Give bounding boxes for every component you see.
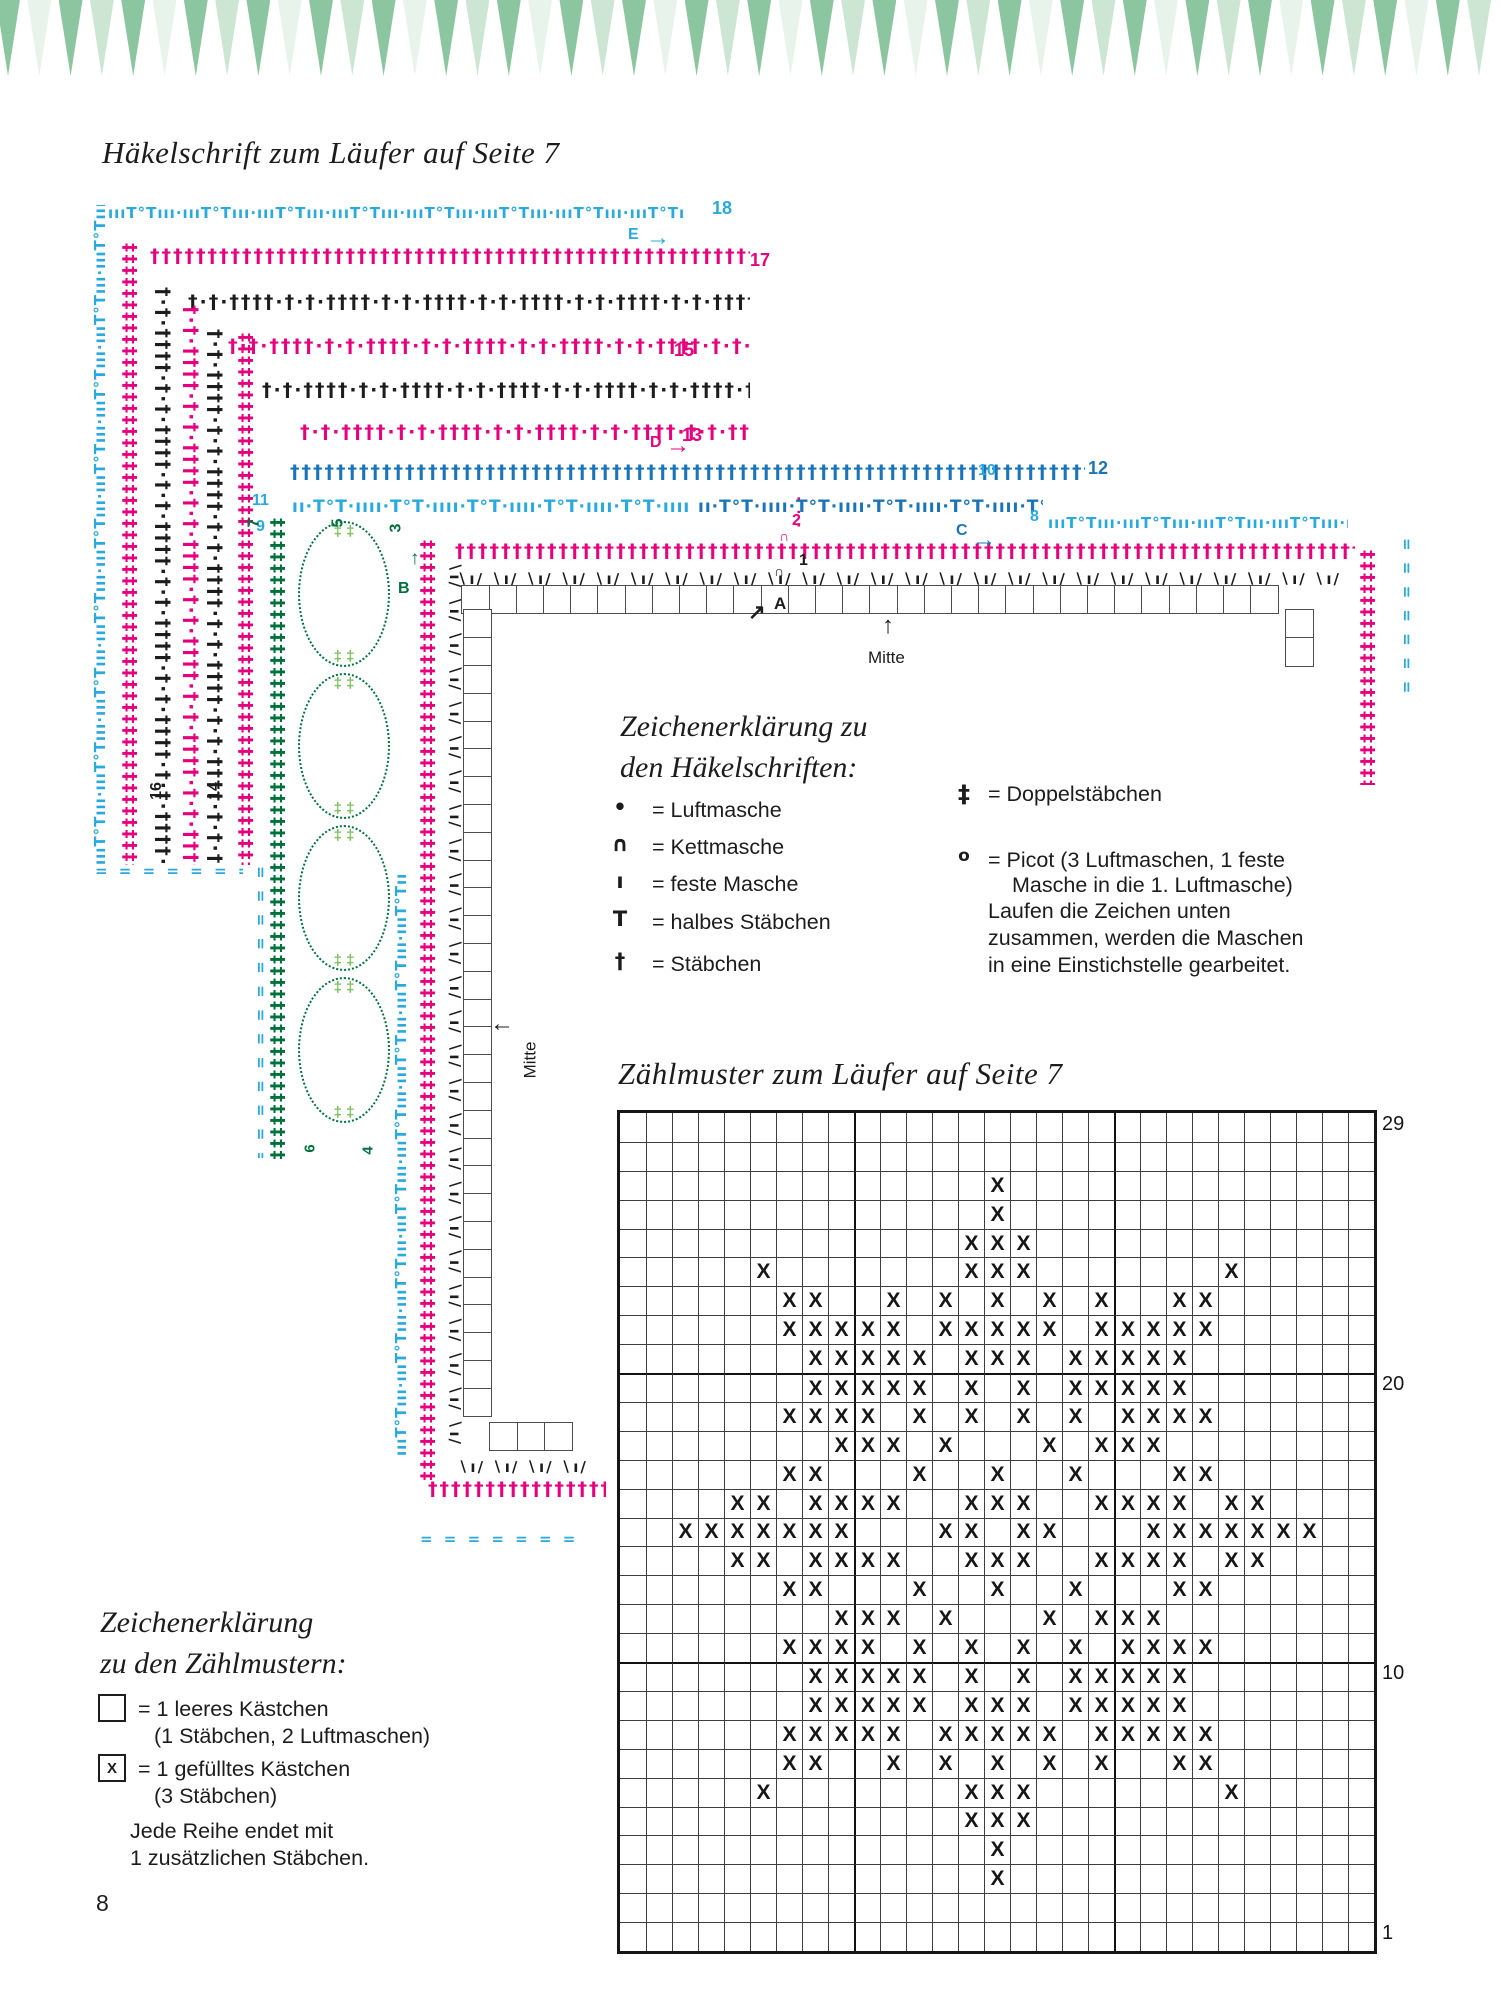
- filled-grid-cell: X: [1166, 1720, 1192, 1749]
- grid-cell: [724, 1720, 750, 1749]
- banner-diamond: [121, 0, 145, 76]
- grid-cell: [724, 1922, 750, 1951]
- grid-cell: [1192, 1431, 1218, 1460]
- filled-grid-cell: X: [1010, 1402, 1036, 1431]
- filled-grid-cell: X: [750, 1546, 776, 1575]
- filet-box: [463, 915, 492, 944]
- grid-cell: [672, 1778, 698, 1807]
- filled-grid-cell: X: [1088, 1546, 1114, 1575]
- grid-cell: [1140, 1257, 1166, 1286]
- grid-cell: [698, 1344, 724, 1373]
- grid-cell: [1218, 1431, 1244, 1460]
- grid-cell: [1348, 1864, 1374, 1893]
- filet-box: [625, 585, 654, 614]
- mitte-label-left: Mitte: [520, 1042, 540, 1079]
- grid-cell: [698, 1778, 724, 1807]
- grid-cell: [1218, 1633, 1244, 1662]
- grid-cell: [828, 1257, 854, 1286]
- filled-grid-cell: X: [984, 1229, 1010, 1258]
- mitte-label-top: Mitte: [868, 648, 905, 668]
- filled-grid-cell: X: [958, 1662, 984, 1691]
- grid-cell: [776, 1604, 802, 1633]
- grid-cell: [1140, 1200, 1166, 1229]
- grid-cell: [646, 1749, 672, 1778]
- grid-cell: [984, 1893, 1010, 1922]
- filled-grid-cell: X: [880, 1720, 906, 1749]
- grid-cell: [1296, 1835, 1322, 1864]
- banner-diamond: [90, 0, 114, 76]
- grid-cell: [1348, 1460, 1374, 1489]
- grid-cell: [984, 1373, 1010, 1402]
- grid-cell: [1322, 1402, 1348, 1431]
- filled-grid-cell: X: [1270, 1518, 1296, 1547]
- filled-grid-cell: X: [1166, 1489, 1192, 1518]
- grid-cell: [1270, 1431, 1296, 1460]
- grid-cell: [1270, 1171, 1296, 1200]
- grid-cell: [620, 1749, 646, 1778]
- grid-cell: [1088, 1257, 1114, 1286]
- filled-grid-cell: X: [776, 1286, 802, 1315]
- grid-cell: [802, 1229, 828, 1258]
- grid-cell: [1244, 1662, 1270, 1691]
- grid-cell: [646, 1489, 672, 1518]
- filled-grid-cell: X: [984, 1720, 1010, 1749]
- filled-grid-cell: X: [958, 1489, 984, 1518]
- grid-cell: [880, 1460, 906, 1489]
- grid-cell: [620, 1373, 646, 1402]
- filled-grid-cell: X: [958, 1257, 984, 1286]
- filled-grid-cell: X: [1114, 1604, 1140, 1633]
- grid-cell: [724, 1633, 750, 1662]
- grid-cell: [646, 1286, 672, 1315]
- filet-box: [463, 693, 492, 722]
- grid-cell: [646, 1922, 672, 1951]
- filet-box: [1060, 585, 1089, 614]
- grid-cell: [776, 1662, 802, 1691]
- stitch-band-groups: †·†·††††·†·†·††††·†·†·††††·†·†·††††·†·†·…: [262, 375, 750, 405]
- filled-grid-cell: X: [1010, 1373, 1036, 1402]
- grid-cell: [1114, 1518, 1140, 1547]
- grid-cell: [1270, 1373, 1296, 1402]
- chart-label-3: 3: [387, 524, 405, 533]
- grid-cell: [1166, 1200, 1192, 1229]
- filled-grid-cell: X: [854, 1604, 880, 1633]
- grid-cell: [1062, 1518, 1088, 1547]
- filet-box: [463, 1165, 492, 1194]
- filled-grid-cell: X: [906, 1691, 932, 1720]
- stitch-legend-text: = Doppelstäbchen: [988, 782, 1162, 807]
- grid-cell: [1322, 1200, 1348, 1229]
- stitch-legend-text: = feste Masche: [652, 872, 798, 897]
- chart-label-14: 14: [206, 782, 224, 800]
- grid-cell: [698, 1546, 724, 1575]
- grid-cell: [620, 1402, 646, 1431]
- grid-cell: [1192, 1373, 1218, 1402]
- filled-box-label: = 1 gefülltes Kästchen: [138, 1757, 350, 1782]
- grid-cell: [828, 1807, 854, 1836]
- filled-grid-cell: X: [1140, 1402, 1166, 1431]
- empty-box-symbol: [98, 1694, 126, 1722]
- grid-cell: [1322, 1633, 1348, 1662]
- grid-cell: [1062, 1489, 1088, 1518]
- filled-grid-cell: X: [880, 1344, 906, 1373]
- grid-cell: [958, 1142, 984, 1171]
- grid-cell: [1088, 1633, 1114, 1662]
- grid-cell: [1322, 1113, 1348, 1142]
- chart-label-16: 16: [148, 782, 166, 800]
- banner-diamond: [747, 0, 771, 76]
- filled-grid-cell: X: [776, 1315, 802, 1344]
- filled-grid-cell: X: [1114, 1315, 1140, 1344]
- grid-cell: [1348, 1893, 1374, 1922]
- filled-grid-cell: X: [1036, 1749, 1062, 1778]
- stitch-band-fans: ıı·Τ°Τ·ıııı·Τ°Τ·ıııı·Τ°Τ·ıııı·Τ°Τ·ıııı·Τ…: [698, 492, 1043, 522]
- chart-label-15: 15: [674, 340, 694, 361]
- banner-diamond: [528, 0, 552, 76]
- grid-cell: [1036, 1171, 1062, 1200]
- arrow-icon: ←: [490, 1010, 514, 1038]
- filled-grid-cell: X: [958, 1633, 984, 1662]
- grid-cell: [1010, 1575, 1036, 1604]
- grid-cell: [1114, 1200, 1140, 1229]
- grid-cell: [1192, 1604, 1218, 1633]
- grid-cell: [1192, 1691, 1218, 1720]
- grid-cell: [1218, 1171, 1244, 1200]
- banner-diamond: [278, 0, 302, 76]
- grid-cell: [1270, 1257, 1296, 1286]
- filet-box: [463, 665, 492, 694]
- grid-cell: [646, 1142, 672, 1171]
- grid-cell: [1192, 1807, 1218, 1836]
- filled-grid-cell: X: [1114, 1489, 1140, 1518]
- grid-cell: [1036, 1200, 1062, 1229]
- filled-grid-cell: X: [1088, 1315, 1114, 1344]
- grid-cell: [1218, 1691, 1244, 1720]
- grid-cell: [1036, 1662, 1062, 1691]
- grid-cell: [1114, 1575, 1140, 1604]
- grid-cell: [1088, 1575, 1114, 1604]
- filled-grid-cell: X: [958, 1518, 984, 1547]
- filled-grid-cell: X: [776, 1460, 802, 1489]
- grid-cell: [1296, 1778, 1322, 1807]
- filled-grid-cell: X: [1114, 1633, 1140, 1662]
- grid-cell: [1166, 1922, 1192, 1951]
- grid-cell: [620, 1344, 646, 1373]
- banner-diamond: [1029, 0, 1053, 76]
- banner-diamond: [1342, 0, 1366, 76]
- grid-cell: [724, 1778, 750, 1807]
- grid-cell: [1270, 1864, 1296, 1893]
- grid-cell: [880, 1893, 906, 1922]
- filet-box: [463, 1360, 492, 1389]
- filled-grid-cell: X: [958, 1402, 984, 1431]
- filled-grid-cell: X: [802, 1575, 828, 1604]
- grid-cell: [1036, 1460, 1062, 1489]
- filled-grid-cell: X: [1088, 1489, 1114, 1518]
- grid-cell: [880, 1200, 906, 1229]
- filled-grid-cell: X: [958, 1778, 984, 1807]
- grid-cell: [1244, 1373, 1270, 1402]
- filled-grid-cell: X: [802, 1286, 828, 1315]
- grid-cell: [1036, 1864, 1062, 1893]
- stitch-band-dense: ††††††††††††††††††††††††††††††††††††††††…: [455, 536, 1355, 566]
- grid-cell: [1062, 1778, 1088, 1807]
- grid-cell: [854, 1575, 880, 1604]
- filled-grid-cell: X: [1010, 1518, 1036, 1547]
- filled-grid-cell: X: [750, 1518, 776, 1547]
- grid-cell: [672, 1864, 698, 1893]
- grid-cell: [776, 1489, 802, 1518]
- grid-cell: [854, 1286, 880, 1315]
- grid-cell: [1296, 1344, 1322, 1373]
- filled-grid-cell: X: [1140, 1604, 1166, 1633]
- grid-cell: [802, 1893, 828, 1922]
- filled-grid-cell: X: [984, 1749, 1010, 1778]
- grid-cell: [958, 1431, 984, 1460]
- filled-grid-cell: X: [906, 1373, 932, 1402]
- chart-label-11: 11: [252, 492, 269, 510]
- filled-grid-cell: X: [1010, 1489, 1036, 1518]
- grid-cell: [984, 1518, 1010, 1547]
- grid-cell: [1088, 1229, 1114, 1258]
- filled-grid-cell: X: [1140, 1720, 1166, 1749]
- filet-box: [463, 1388, 492, 1417]
- grid-cell: [646, 1518, 672, 1547]
- grid-cell: [1296, 1460, 1322, 1489]
- grid-cell: [1218, 1922, 1244, 1951]
- lace-motif: ‡ ‡‡ ‡: [298, 673, 390, 819]
- grid-cell: [906, 1749, 932, 1778]
- filled-grid-cell: X: [750, 1489, 776, 1518]
- filled-grid-cell: X: [906, 1460, 932, 1489]
- grid-cell: [1062, 1315, 1088, 1344]
- filled-grid-cell: X: [1166, 1633, 1192, 1662]
- grid-cell: [776, 1373, 802, 1402]
- grid-row-label-10: 10: [1382, 1662, 1404, 1685]
- grid-cell: [1192, 1257, 1218, 1286]
- grid-cell: [932, 1142, 958, 1171]
- chart-label-D: D: [650, 434, 662, 452]
- grid-cell: [750, 1922, 776, 1951]
- grid-cell: [1296, 1286, 1322, 1315]
- grid-cell: [854, 1460, 880, 1489]
- grid-cell: [880, 1575, 906, 1604]
- filled-grid-cell: X: [906, 1344, 932, 1373]
- grid-cell: [802, 1807, 828, 1836]
- grid-cell: [880, 1402, 906, 1431]
- grid-cell: [620, 1113, 646, 1142]
- grid-cell: [1062, 1257, 1088, 1286]
- grid-cell: [698, 1402, 724, 1431]
- filled-grid-cell: X: [906, 1575, 932, 1604]
- grid-cell: [1296, 1864, 1322, 1893]
- grid-cell: [1218, 1864, 1244, 1893]
- grid-cell: [854, 1922, 880, 1951]
- grid-cell: [880, 1142, 906, 1171]
- grid-cell: [646, 1257, 672, 1286]
- grid-cell: [1166, 1835, 1192, 1864]
- book-page: Häkelschrift zum Läufer auf Seite 7 ıııΤ…: [0, 0, 1500, 2000]
- grid-cell: [1114, 1113, 1140, 1142]
- filled-grid-cell: X: [828, 1489, 854, 1518]
- grid-cell: [1270, 1229, 1296, 1258]
- filled-grid-cell: X: [1166, 1575, 1192, 1604]
- filet-box: [463, 832, 492, 861]
- grid-cell: [906, 1431, 932, 1460]
- grid-cell: [1218, 1142, 1244, 1171]
- grid-cell: [854, 1778, 880, 1807]
- grid-cell: [1192, 1835, 1218, 1864]
- filled-grid-cell: X: [1192, 1460, 1218, 1489]
- grid-cell: [1062, 1200, 1088, 1229]
- grid-cell: [750, 1749, 776, 1778]
- grid-cell: [1088, 1518, 1114, 1547]
- grid-cell: [932, 1575, 958, 1604]
- grid-cell: [1296, 1373, 1322, 1402]
- filled-grid-cell: X: [984, 1546, 1010, 1575]
- haekelschrift-title: Häkelschrift zum Läufer auf Seite 7: [102, 135, 559, 171]
- grid-cell: [1088, 1893, 1114, 1922]
- grid-cell: [906, 1604, 932, 1633]
- grid-cell: [1166, 1604, 1192, 1633]
- grid-cell: [1140, 1778, 1166, 1807]
- filet-box: [1005, 585, 1034, 614]
- filet-box: [815, 585, 844, 614]
- grid-cell: [906, 1142, 932, 1171]
- grid-cell: [1062, 1835, 1088, 1864]
- grid-cell: [802, 1200, 828, 1229]
- grid-cell: [1036, 1546, 1062, 1575]
- filet-box: [463, 860, 492, 889]
- grid-cell: [1010, 1749, 1036, 1778]
- filled-grid-cell: X: [1140, 1315, 1166, 1344]
- grid-cell: [1166, 1142, 1192, 1171]
- grid-cell: [1062, 1893, 1088, 1922]
- grid-cell: [1322, 1546, 1348, 1575]
- filled-grid-cell: X: [984, 1807, 1010, 1836]
- banner-diamond: [966, 0, 990, 76]
- filet-box: [951, 585, 980, 614]
- grid-cell: [724, 1431, 750, 1460]
- grid-cell: [750, 1633, 776, 1662]
- grid-cell: [698, 1489, 724, 1518]
- grid-cell: [906, 1546, 932, 1575]
- grid-cell: [854, 1142, 880, 1171]
- banner-diamond: [184, 0, 208, 76]
- chart-label-2: 2: [792, 512, 801, 530]
- grid-cell: [620, 1489, 646, 1518]
- grid-cell: [1296, 1807, 1322, 1836]
- grid-cell: [880, 1229, 906, 1258]
- filled-grid-cell: X: [1114, 1662, 1140, 1691]
- filled-grid-cell: X: [880, 1489, 906, 1518]
- grid-cell: [1036, 1373, 1062, 1402]
- grid-cell: [880, 1113, 906, 1142]
- grid-cell: [828, 1113, 854, 1142]
- grid-cell: [1062, 1864, 1088, 1893]
- grid-cell: [724, 1893, 750, 1922]
- grid-cell: [776, 1893, 802, 1922]
- filled-grid-cell: X: [802, 1460, 828, 1489]
- filet-box: [463, 1082, 492, 1111]
- grid-cell: [828, 1749, 854, 1778]
- stitch-legend-text: = Picot (3 Luftmaschen, 1 festeMasche in…: [988, 848, 1293, 898]
- grid-cell: [1244, 1720, 1270, 1749]
- grid-cell: [776, 1807, 802, 1836]
- grid-cell: [1270, 1778, 1296, 1807]
- grid-cell: [672, 1662, 698, 1691]
- grid-cell: [1296, 1662, 1322, 1691]
- grid-cell: [1114, 1922, 1140, 1951]
- filled-grid-cell: X: [984, 1489, 1010, 1518]
- filet-box: [544, 1422, 573, 1451]
- stitch-symbol: Τ: [608, 907, 632, 931]
- grid-cell: [1348, 1200, 1374, 1229]
- grid-cell: [776, 1835, 802, 1864]
- filled-grid-cell: X: [1166, 1344, 1192, 1373]
- filled-grid-cell: X: [1010, 1229, 1036, 1258]
- grid-cell: [1348, 1113, 1374, 1142]
- grid-cell: [1244, 1229, 1270, 1258]
- filet-box: [463, 1193, 492, 1222]
- grid-cell: [1088, 1460, 1114, 1489]
- banner-diamond: [497, 0, 521, 76]
- grid-cell: [1010, 1922, 1036, 1951]
- grid-cell: [750, 1315, 776, 1344]
- grid-cell: [1296, 1113, 1322, 1142]
- grid-cell: [672, 1807, 698, 1836]
- filled-grid-cell: X: [880, 1431, 906, 1460]
- grid-cell: [1322, 1229, 1348, 1258]
- grid-cell: [646, 1835, 672, 1864]
- grid-cell: [958, 1200, 984, 1229]
- grid-cell: [1244, 1431, 1270, 1460]
- grid-cell: [1348, 1720, 1374, 1749]
- grid-cell: [1114, 1807, 1140, 1836]
- grid-cell: [776, 1344, 802, 1373]
- grid-cell: [1114, 1893, 1140, 1922]
- grid-cell: [958, 1604, 984, 1633]
- filled-grid-cell: X: [880, 1662, 906, 1691]
- grid-cell: [932, 1835, 958, 1864]
- grid-cell: [1296, 1200, 1322, 1229]
- grid-cell: [932, 1489, 958, 1518]
- stitch-band-dense2: ‡‡‡‡‡‡‡‡‡‡‡‡‡‡‡‡‡‡‡‡‡‡‡‡‡‡‡‡‡‡‡‡‡‡‡‡‡‡‡‡…: [114, 243, 144, 865]
- grid-cell: [1244, 1200, 1270, 1229]
- grid-cell: [1348, 1489, 1374, 1518]
- legend-zaehlmuster-heading: Zeichenerklärung zu den Zählmustern:: [100, 1602, 347, 1684]
- grid-cell: [1296, 1257, 1322, 1286]
- grid-cell: [750, 1662, 776, 1691]
- grid-cell: [984, 1604, 1010, 1633]
- banner-diamond: [59, 0, 83, 76]
- filet-box: [463, 1249, 492, 1278]
- grid-cell: [1322, 1778, 1348, 1807]
- filled-grid-cell: X: [724, 1546, 750, 1575]
- grid-cell: [932, 1257, 958, 1286]
- grid-cell: [724, 1460, 750, 1489]
- grid-cell: [620, 1431, 646, 1460]
- grid-cell: [1322, 1373, 1348, 1402]
- filled-grid-cell: X: [750, 1257, 776, 1286]
- grid-cell: [828, 1200, 854, 1229]
- grid-cell: [1270, 1633, 1296, 1662]
- banner-diamond: [872, 0, 896, 76]
- chart-label-12: 12: [1088, 458, 1108, 479]
- banner-diamond: [935, 0, 959, 76]
- stitch-band-dense: ††††††††††††††††††††††††††††††††††††††††…: [290, 457, 1085, 487]
- filled-grid-cell: X: [932, 1749, 958, 1778]
